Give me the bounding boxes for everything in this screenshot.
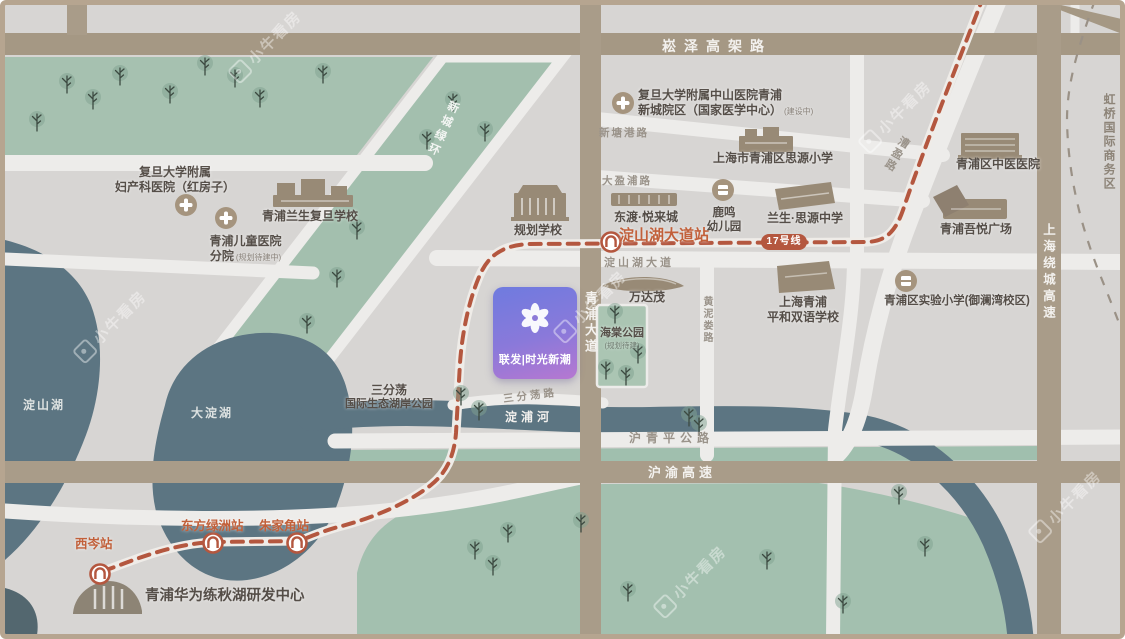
poi-label-line: 平和双语学校 <box>761 310 845 325</box>
poi-label-line: 三分荡 <box>339 383 439 398</box>
road-label-huangnilou: 黄泥娄路 <box>699 296 714 374</box>
poi-label-guihua-school: 规划学校 <box>508 223 568 238</box>
poi-label-dongdu-yuelai: 东渡·悦来城 <box>608 210 684 225</box>
property-name: 联发|时光新潮 <box>499 351 572 367</box>
poi-label-fuchan-hospital: 复旦大学附属 妇产科医院（红房子） <box>100 165 250 195</box>
guihua-school-building <box>511 185 569 221</box>
shiyan-primary-icon <box>895 270 917 292</box>
poi-label-line: 复旦大学附属 <box>100 165 250 180</box>
siyuan-primary-building <box>739 127 793 152</box>
poi-label-haitang-park: 海棠公园 (规划待建) <box>597 327 647 350</box>
river-label-dianpu: 淀浦河 <box>505 408 553 425</box>
wuyue-plaza-building <box>933 185 1007 219</box>
poi-label-line: 国际生态湖岸公园 <box>339 398 439 412</box>
road-label-dayingpu: 大盈浦路 <box>602 173 652 188</box>
poi-label-wandamao: 万达茂 <box>624 290 670 305</box>
road-label-raocheng: 上海绕城高速 <box>1039 223 1058 368</box>
pinghe-school-building <box>777 261 835 293</box>
station-label-zhujiajiao: 朱家角站 <box>259 515 309 534</box>
property-logo-icon <box>518 301 552 335</box>
metro-logo-zhujiajiao-icon <box>288 534 307 553</box>
property-marker[interactable]: 联发|时光新潮 <box>493 287 577 379</box>
metro-logo-dianshanhu-icon <box>602 233 621 252</box>
poi-label-line: 幼儿园 <box>702 220 746 234</box>
poi-label-shiyan-primary: 青浦区实验小学(御澜湾校区) <box>881 294 1033 308</box>
poi-label-luming-kindergarten: 鹿鸣 幼儿园 <box>702 206 746 235</box>
metro-line-17-badge: 17号线 <box>761 234 807 250</box>
poi-label-siyuan-primary: 上海市青浦区思源小学 <box>711 151 835 166</box>
poi-label-sanfendang-park: 三分荡 国际生态湖岸公园 <box>339 383 439 412</box>
road-label-huqingping: 沪青平公路 <box>629 429 714 446</box>
poi-label-line: 青浦儿童医院 <box>173 234 318 249</box>
station-label-xicen: 西岑站 <box>75 533 113 552</box>
poi-label-zhongyi-hospital: 青浦区中医医院 <box>953 157 1043 172</box>
poi-label-line: 分院 <box>210 249 234 263</box>
poi-label-note: (规划待建) <box>597 341 647 350</box>
zhongshan-hospital-icon <box>612 92 634 114</box>
real-estate-location-map: 崧泽高架路 新塘港路 大盈浦路 淀山湖大道 沪青平公路 沪渝高速 三分荡路 淀浦… <box>0 0 1125 639</box>
poi-label-note: (规划待建中) <box>236 253 281 262</box>
road-label-songze: 崧泽高架路 <box>627 36 807 56</box>
poi-label-line: 复旦大学附属中山医院青浦 <box>638 88 813 103</box>
lake-label-dianshan: 淀山湖 <box>23 396 65 413</box>
fuchan-hospital-icon <box>175 194 197 216</box>
poi-label-lansheng-siyuan: 兰生·思源中学 <box>763 211 847 226</box>
poi-label-lansheng-fudan: 青浦兰生复旦学校 <box>255 209 365 224</box>
metro-logo-xicen-icon <box>91 565 110 584</box>
poi-label-line: 鹿鸣 <box>702 206 746 220</box>
road-label-xintanggang: 新塘港路 <box>599 125 649 140</box>
district-label-hongqiao-cbd: 虹桥国际商务区 <box>1101 93 1118 208</box>
poi-label-line: 妇产科医院（红房子） <box>100 180 250 195</box>
poi-label-line: 海棠公园 <box>597 327 647 341</box>
poi-label-huawei-center: 青浦华为练秋湖研发中心 <box>145 587 305 605</box>
poi-label-pinghe-school: 上海青浦 平和双语学校 <box>761 295 845 325</box>
station-label-dianshanhu: 淀山湖大道站 <box>619 224 709 245</box>
poi-label-children-hospital: 青浦儿童医院 分院(规划待建中) <box>173 234 318 264</box>
poi-label-line: 上海青浦 <box>761 295 845 310</box>
dongdu-yuelai-building <box>611 193 677 206</box>
children-hospital-icon <box>215 207 237 229</box>
luming-kindergarten-icon <box>712 179 734 201</box>
poi-label-note: (建设中) <box>784 107 813 116</box>
lake-label-dadian: 大淀湖 <box>191 404 233 421</box>
zhongyi-hospital-building <box>958 133 1022 159</box>
station-label-dongfanglvzhou: 东方绿洲站 <box>181 515 244 534</box>
poi-label-line: 新城院区（国家医学中心） <box>638 103 782 117</box>
poi-label-zhongshan-hospital: 复旦大学附属中山医院青浦 新城院区（国家医学中心）(建设中) <box>638 88 813 118</box>
road-label-dianshanhu-ave: 淀山湖大道 <box>604 254 674 270</box>
poi-label-wuyue-plaza: 青浦吾悦广场 <box>938 222 1014 237</box>
road-label-huyu: 沪渝高速 <box>648 462 716 481</box>
huawei-center-building <box>73 581 142 614</box>
metro-logo-dongfanglvzhou-icon <box>204 534 223 553</box>
